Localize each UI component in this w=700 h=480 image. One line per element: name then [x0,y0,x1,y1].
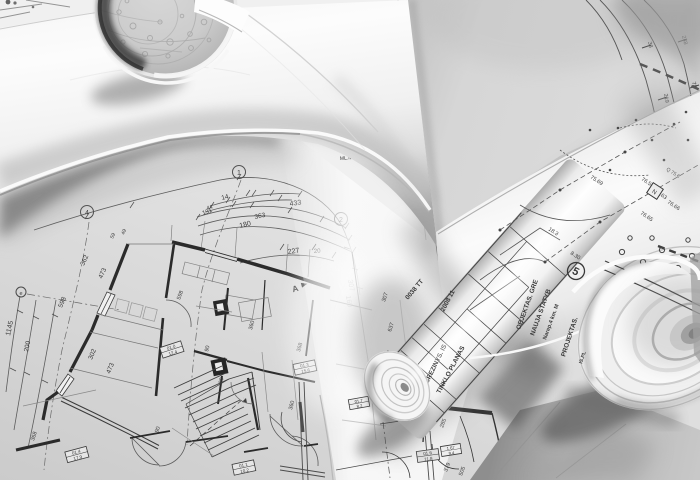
svg-text:1: 1 [237,170,241,177]
svg-text:4: 4 [85,210,89,217]
svg-text:e: e [19,291,22,297]
